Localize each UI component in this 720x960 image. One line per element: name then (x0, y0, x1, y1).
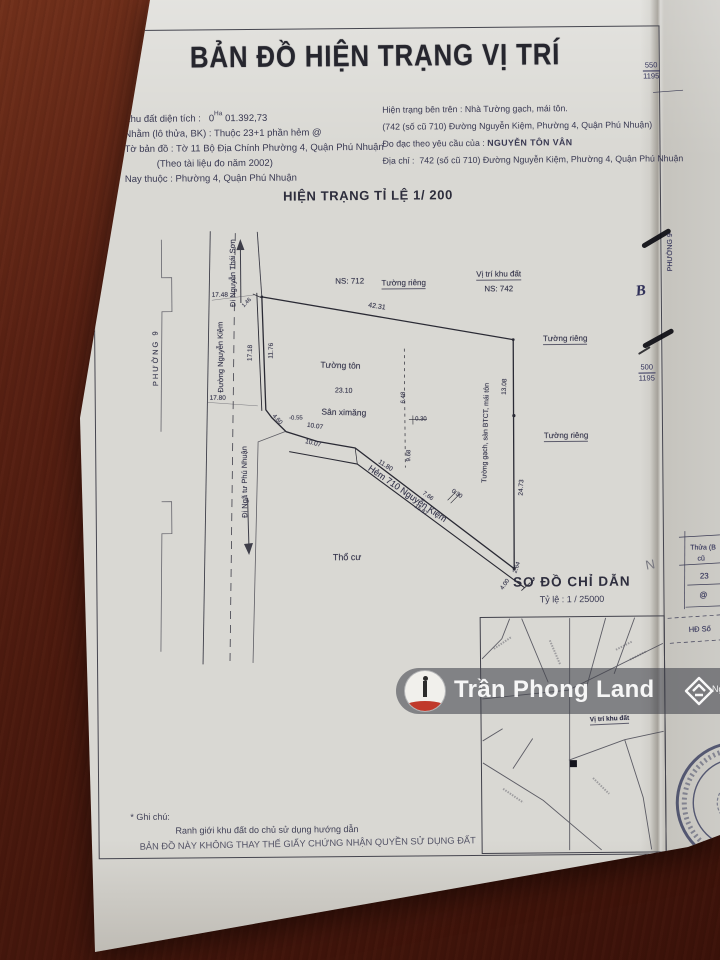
watermark-text: Trần Phong Land (454, 676, 655, 704)
label-tuong-rieng-r1: Tường riêng (543, 334, 587, 345)
inset-location-marker (570, 760, 577, 767)
owner-name: NGUYỄN TÔN VÂN (487, 137, 572, 148)
area-line: Khu đất diện tích : 0Ha 01.392,73 (124, 105, 383, 127)
logo-red-ground (405, 701, 445, 711)
document-content: BẢN ĐỒ HIỆN TRẠNG VỊ TRÍ Khu đất diện tí… (0, 0, 720, 960)
logo-person-figure (423, 681, 427, 697)
dim-17-80: 17.80 (210, 395, 226, 402)
inset-map-scale: Tỷ lệ : 1 / 25000 (479, 593, 664, 605)
watermark-bar: Trần Phong Land Ngo (396, 668, 720, 714)
dim-0-30-a: 0.30 (415, 416, 427, 422)
photo-of-survey-document: BẢN ĐỒ HIỆN TRẠNG VỊ TRÍ Khu đất diện tí… (0, 0, 720, 960)
tran-phong-land-logo-icon (405, 671, 445, 711)
seal-stamp (677, 742, 720, 863)
address-line: Địa chỉ : 742 (số cũ 710) Đường Nguyễn K… (383, 150, 693, 170)
label-tuong-ton: Tường tôn (320, 360, 360, 371)
label-tuong-rieng-top: Tường riêng (381, 278, 425, 289)
note-boundary: Ranh giới khu đất do chủ sử dụng hướng d… (175, 824, 358, 836)
label-ns-712: NS: 712 (335, 276, 364, 285)
dim-6-48: 6.48 (401, 392, 407, 404)
parcel-info-left: Khu đất diện tích : 0Ha 01.392,73 Nhằm (… (124, 105, 384, 187)
dim-17-48: 17.48 (212, 292, 228, 299)
paper-sheet: BẢN ĐỒ HIỆN TRẠNG VỊ TRÍ Khu đất diện tí… (0, 0, 720, 960)
margin-labels-layer: PHƯỜNG 9BThửa (Bcũ23@HĐ SốN (0, 0, 716, 3)
current-ward-line: Nay thuộc : Phường 4, Quận Phú Nhuận (125, 170, 384, 187)
parcel-info-right: Hiện trạng bên trên : Nhà Tường gạch, má… (382, 99, 693, 170)
logo-person-head (423, 676, 428, 681)
document-title-text: BẢN ĐỒ HIỆN TRẠNG VỊ TRÍ (189, 38, 560, 75)
margin-hd-so: HĐ Số (689, 624, 711, 634)
street-di-nguyen-thai-son: Đi Nguyễn Thái Sơn (228, 239, 238, 307)
inset-map-title: SƠ ĐỒ CHỈ DẪN (479, 573, 664, 590)
street-duong-nguyen-kiem: Đường Nguyễn Kiệm (216, 322, 226, 393)
dim-23-10: 23.10 (335, 387, 353, 394)
scale-subtitle: HIỆN TRẠNG TỈ LỆ 1/ 200 (228, 187, 508, 204)
note-heading: * Ghi chú: (130, 812, 170, 822)
label-ns-742: NS: 742 (484, 284, 513, 293)
label-phuong-9-left: PHƯỜNG 9 (151, 329, 160, 386)
margin-23: 23 (700, 571, 709, 580)
label-vi-tri-khu-dat: Vị trí khu đất (476, 269, 521, 280)
watermark-side-text: Ngo (712, 684, 720, 694)
margin-sheet-number-top: 550 1195 (643, 60, 660, 81)
margin-sheet-number-mid: 500 1195 (638, 362, 655, 383)
margin-phuong-9: PHƯỜNG 9 (667, 233, 674, 271)
dim-9-68: 9.68 (406, 450, 412, 462)
margin-at: @ (699, 590, 707, 599)
paper-sheet-wrap: BẢN ĐỒ HIỆN TRẠNG VỊ TRÍ Khu đất diện tí… (0, 0, 720, 960)
label-tuong-rieng-r2: Tường riêng (544, 431, 588, 442)
inset-map-box (480, 615, 667, 854)
address-old-line: (742 (số cũ 710) Đường Nguyễn Kiệm, Phườ… (382, 116, 692, 136)
diamond-logo-icon (684, 676, 714, 706)
dim-24-73: 24.73 (518, 479, 526, 496)
margin-thua: Thửa (B (690, 544, 716, 551)
dim-17-18: 17.18 (247, 345, 254, 361)
dim-11-76: 11.76 (268, 343, 275, 359)
hectare-unit: Ha (214, 110, 222, 117)
document-title: BẢN ĐỒ HIỆN TRẠNG VỊ TRÍ (92, 37, 658, 76)
dim-0-55: -0.55 (289, 415, 303, 421)
label-san-ximang: Sân ximăng (321, 407, 366, 418)
label-tho-cu: Thổ cư (333, 552, 362, 562)
margin-north-b: B (635, 283, 647, 301)
plat-labels-layer: NS: 712Tường riêngVị trí khu đấtNS: 7424… (0, 0, 716, 3)
dim-13-08: 13.08 (501, 378, 509, 395)
margin-cu: cũ (697, 555, 704, 562)
mapsheet-line: Tờ bản đồ : Tờ 11 Bộ Địa Chính Phường 4,… (124, 140, 383, 157)
street-di-nga-tu-phu-nhuan: Đi Ngã tư Phú Nhuận (240, 446, 250, 518)
